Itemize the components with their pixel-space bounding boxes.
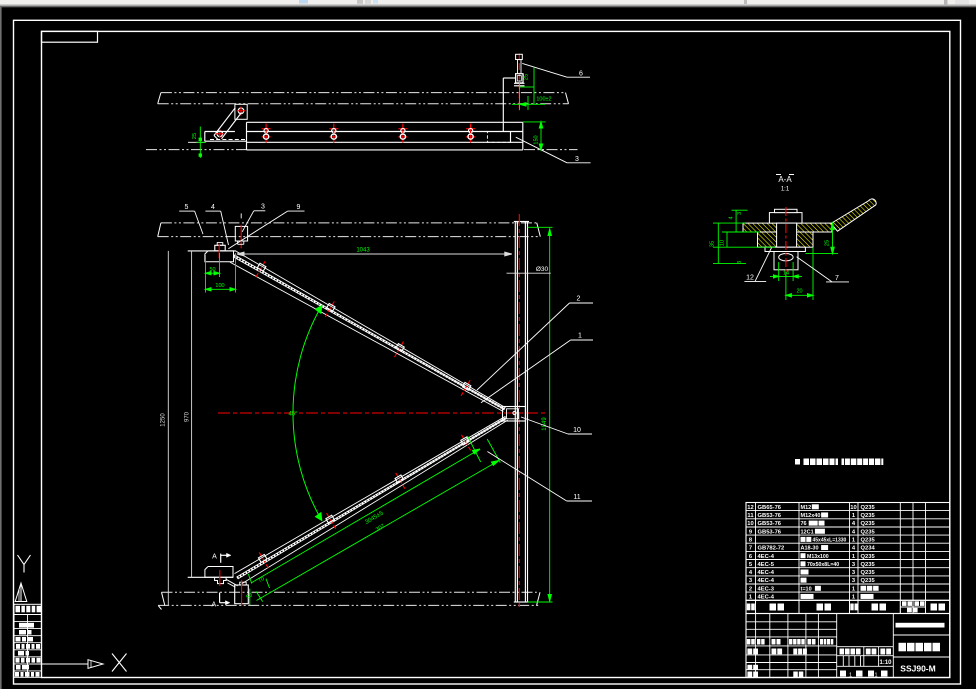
- svg-text:GB782-72: GB782-72: [758, 546, 785, 552]
- svg-text:10: 10: [850, 505, 856, 511]
- svg-text:3: 3: [575, 156, 579, 163]
- svg-text:t=10: t=10: [801, 586, 812, 592]
- svg-text:45°: 45°: [288, 412, 298, 418]
- svg-text:Q235: Q235: [861, 513, 876, 519]
- svg-text:7: 7: [749, 546, 752, 552]
- svg-text:9: 9: [297, 204, 301, 211]
- svg-text:1250: 1250: [161, 413, 167, 427]
- svg-text:4EC-4: 4EC-4: [758, 578, 775, 584]
- svg-text:10: 10: [720, 240, 726, 246]
- svg-text:M12: M12: [801, 505, 812, 511]
- svg-text:Q235: Q235: [861, 521, 876, 527]
- svg-text:SSJ90-M: SSJ90-M: [900, 664, 935, 674]
- svg-text:A: A: [211, 602, 216, 609]
- svg-text:3: 3: [737, 212, 743, 215]
- svg-text:10: 10: [573, 427, 581, 434]
- svg-text:970: 970: [185, 411, 191, 422]
- svg-text:20: 20: [796, 289, 802, 295]
- svg-text:25: 25: [192, 133, 198, 139]
- svg-text:14: 14: [783, 271, 789, 277]
- svg-text:100±2: 100±2: [536, 97, 551, 103]
- svg-text:76: 76: [801, 521, 807, 527]
- svg-text:1: 1: [578, 333, 582, 340]
- svg-text:1: 1: [874, 672, 877, 678]
- svg-text:25: 25: [825, 240, 831, 246]
- svg-text:A-A: A-A: [778, 175, 792, 184]
- svg-text:Q235: Q235: [861, 538, 876, 544]
- svg-text:50: 50: [209, 267, 215, 273]
- svg-text:2: 2: [749, 586, 752, 592]
- svg-text:4EC-4: 4EC-4: [758, 595, 775, 601]
- svg-text:1043: 1043: [356, 248, 370, 254]
- svg-text:A: A: [212, 554, 217, 561]
- svg-text:GB53-76: GB53-76: [758, 529, 782, 535]
- svg-text:Ø30: Ø30: [536, 266, 549, 273]
- svg-text:1:1: 1:1: [781, 187, 790, 193]
- svg-text:Q235: Q235: [861, 562, 876, 568]
- svg-text:3: 3: [261, 204, 265, 211]
- svg-text:6: 6: [579, 71, 583, 78]
- svg-text:GB53-76: GB53-76: [758, 513, 782, 519]
- svg-text:4EC-4: 4EC-4: [758, 570, 775, 576]
- svg-text:Q235: Q235: [861, 554, 876, 560]
- svg-text:3: 3: [737, 261, 743, 264]
- svg-text:7: 7: [835, 275, 839, 282]
- svg-text:2: 2: [577, 296, 581, 303]
- svg-text:5: 5: [185, 204, 189, 211]
- svg-text:4: 4: [211, 204, 215, 211]
- svg-text:12: 12: [746, 275, 754, 282]
- svg-text:Q235: Q235: [861, 570, 876, 576]
- svg-text:35: 35: [710, 241, 716, 247]
- svg-text:Q234: Q234: [861, 546, 876, 552]
- svg-text:4EC-5: 4EC-5: [758, 562, 775, 568]
- svg-text:GB65-76: GB65-76: [758, 505, 782, 511]
- svg-text:M13x100: M13x100: [807, 554, 829, 560]
- svg-text:12: 12: [747, 505, 753, 511]
- svg-text:A18-30: A18-30: [801, 546, 819, 552]
- svg-text:70x50x8L=40: 70x50x8L=40: [807, 562, 839, 568]
- svg-text:4: 4: [729, 216, 735, 219]
- svg-text:1:10: 1:10: [879, 660, 892, 666]
- svg-text:GB53-76: GB53-76: [758, 521, 782, 527]
- svg-text:M12x40: M12x40: [801, 513, 821, 519]
- svg-text:4EC-3: 4EC-3: [758, 586, 775, 592]
- svg-text:12C1: 12C1: [801, 529, 814, 535]
- svg-text:Q235: Q235: [861, 529, 876, 535]
- svg-text:Q235: Q235: [861, 505, 876, 511]
- svg-text:1049: 1049: [542, 417, 548, 431]
- svg-text:11: 11: [573, 494, 580, 501]
- svg-text:4EC-4: 4EC-4: [758, 554, 775, 560]
- svg-text:10: 10: [747, 521, 753, 527]
- svg-text:1: 1: [849, 672, 852, 678]
- svg-text:25: 25: [524, 74, 530, 80]
- svg-text:100: 100: [215, 283, 224, 289]
- svg-text:150: 150: [534, 135, 540, 144]
- svg-text:45x45xL=1330: 45x45xL=1330: [813, 538, 847, 544]
- svg-text:11: 11: [747, 513, 754, 519]
- svg-text:Q235: Q235: [861, 578, 876, 584]
